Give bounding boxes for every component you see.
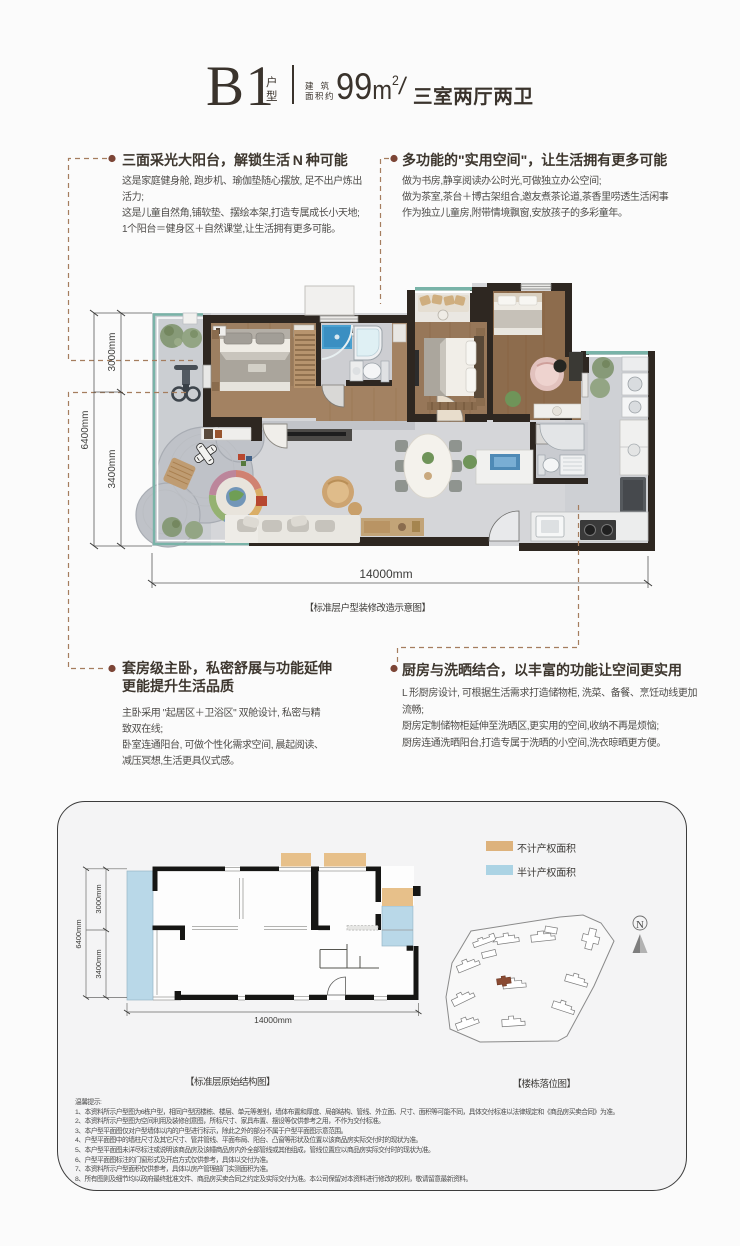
svg-text:N: N: [636, 919, 644, 931]
svg-text:14000mm: 14000mm: [359, 567, 412, 581]
svg-text:14000mm: 14000mm: [254, 1015, 292, 1025]
svg-text:6400mm: 6400mm: [74, 919, 83, 948]
svg-text:3000mm: 3000mm: [94, 884, 103, 913]
svg-text:3000mm: 3000mm: [107, 333, 118, 372]
svg-text:3400mm: 3400mm: [107, 450, 118, 489]
svg-text:3400mm: 3400mm: [94, 949, 103, 978]
svg-text:6400mm: 6400mm: [80, 411, 91, 450]
